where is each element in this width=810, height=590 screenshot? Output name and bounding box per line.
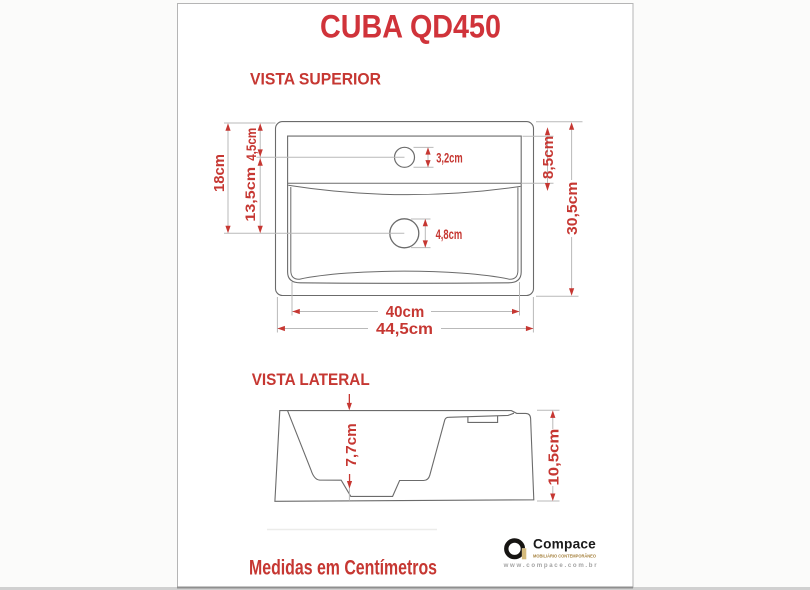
svg-text:VISTA LATERAL: VISTA LATERAL (252, 370, 370, 389)
svg-text:8,5cm: 8,5cm (541, 136, 557, 179)
svg-text:4,5cm: 4,5cm (243, 128, 259, 161)
svg-text:VISTA SUPERIOR: VISTA SUPERIOR (250, 69, 381, 88)
svg-text:44,5cm: 44,5cm (376, 321, 433, 338)
svg-text:40cm: 40cm (386, 304, 425, 321)
svg-text:MOBILIÁRIO CONTEMPORÂNEO: MOBILIÁRIO CONTEMPORÂNEO (533, 553, 597, 558)
svg-text:4,8cm: 4,8cm (436, 226, 463, 242)
svg-text:18cm: 18cm (211, 154, 228, 192)
svg-text:3,2cm: 3,2cm (436, 149, 463, 165)
svg-text:CUBA QD450: CUBA QD450 (320, 9, 501, 45)
svg-text:Compace: Compace (533, 537, 596, 552)
svg-text:10,5cm: 10,5cm (546, 429, 563, 486)
svg-text:13,5cm: 13,5cm (242, 167, 258, 222)
svg-text:Medidas em Centímetros: Medidas em Centímetros (249, 557, 437, 580)
svg-text:7,7cm: 7,7cm (344, 423, 360, 466)
svg-text:w w w . c o m p a c e . c o m: w w w . c o m p a c e . c o m . b r (503, 562, 597, 569)
svg-text:30,5cm: 30,5cm (564, 182, 581, 235)
